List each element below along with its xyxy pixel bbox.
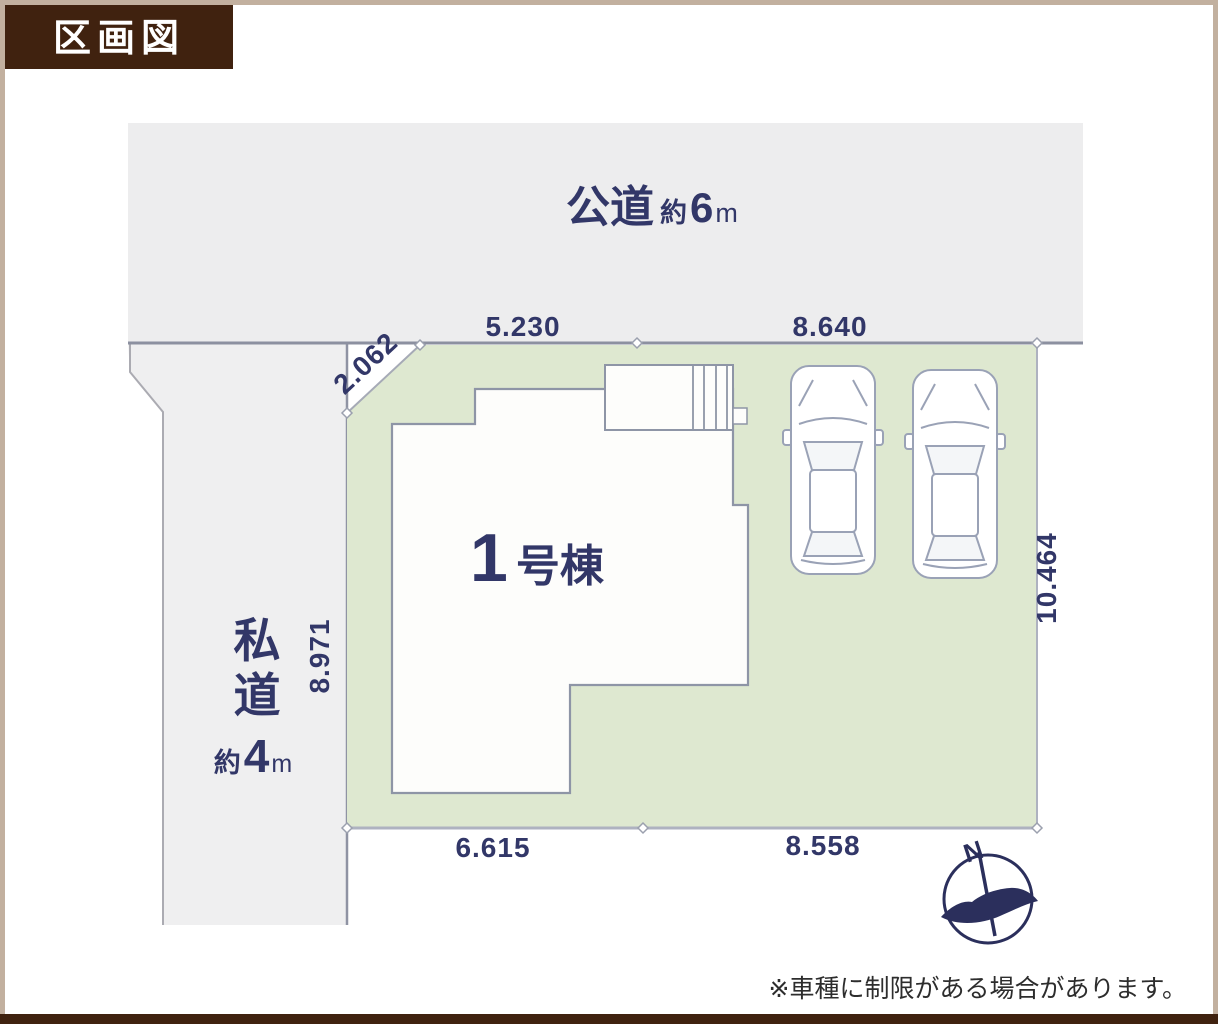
frame-border-top (0, 0, 1218, 5)
porch-side-step (733, 408, 747, 424)
plot-plan-page: 公道約6m 私 道 約4m 1号棟 5.230 8.640 2.062 8.97… (0, 0, 1218, 1024)
car-1 (783, 366, 883, 574)
private-road-label-char1: 私 (234, 614, 281, 667)
dim-west: 8.971 (304, 618, 335, 693)
public-road-label: 公道約6m (566, 183, 738, 232)
entrance-porch (605, 365, 733, 430)
dim-north-left: 5.230 (485, 311, 560, 342)
public-road-area (128, 123, 1083, 343)
dim-south-left: 6.615 (455, 832, 530, 863)
private-road-label-char2: 道 (234, 669, 281, 722)
car-2 (905, 370, 1005, 578)
dim-south-right: 8.558 (785, 830, 860, 861)
plot-plan-drawing: 公道約6m 私 道 約4m 1号棟 5.230 8.640 2.062 8.97… (0, 0, 1218, 1024)
frame-border-bottom (0, 1014, 1218, 1024)
title-badge-label: 区画図 (53, 18, 185, 60)
dim-east: 10.464 (1031, 532, 1062, 624)
frame-border-left (0, 0, 5, 1024)
dim-north-right: 8.640 (792, 311, 867, 342)
footnote-text: ※車種に制限がある場合があります。 (769, 975, 1187, 1003)
frame-border-right (1213, 0, 1218, 1024)
